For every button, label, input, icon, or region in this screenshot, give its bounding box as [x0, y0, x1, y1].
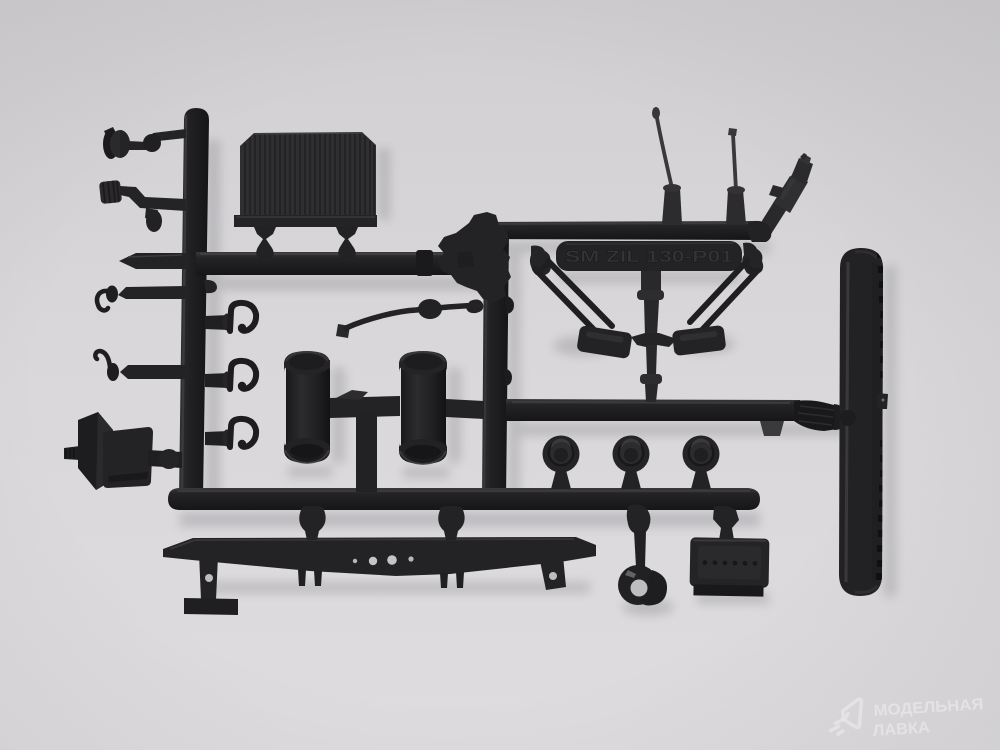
svg-text:SM ZIL 130-P01: SM ZIL 130-P01	[565, 248, 733, 266]
svg-text:ЛАВКА: ЛАВКА	[872, 719, 930, 739]
